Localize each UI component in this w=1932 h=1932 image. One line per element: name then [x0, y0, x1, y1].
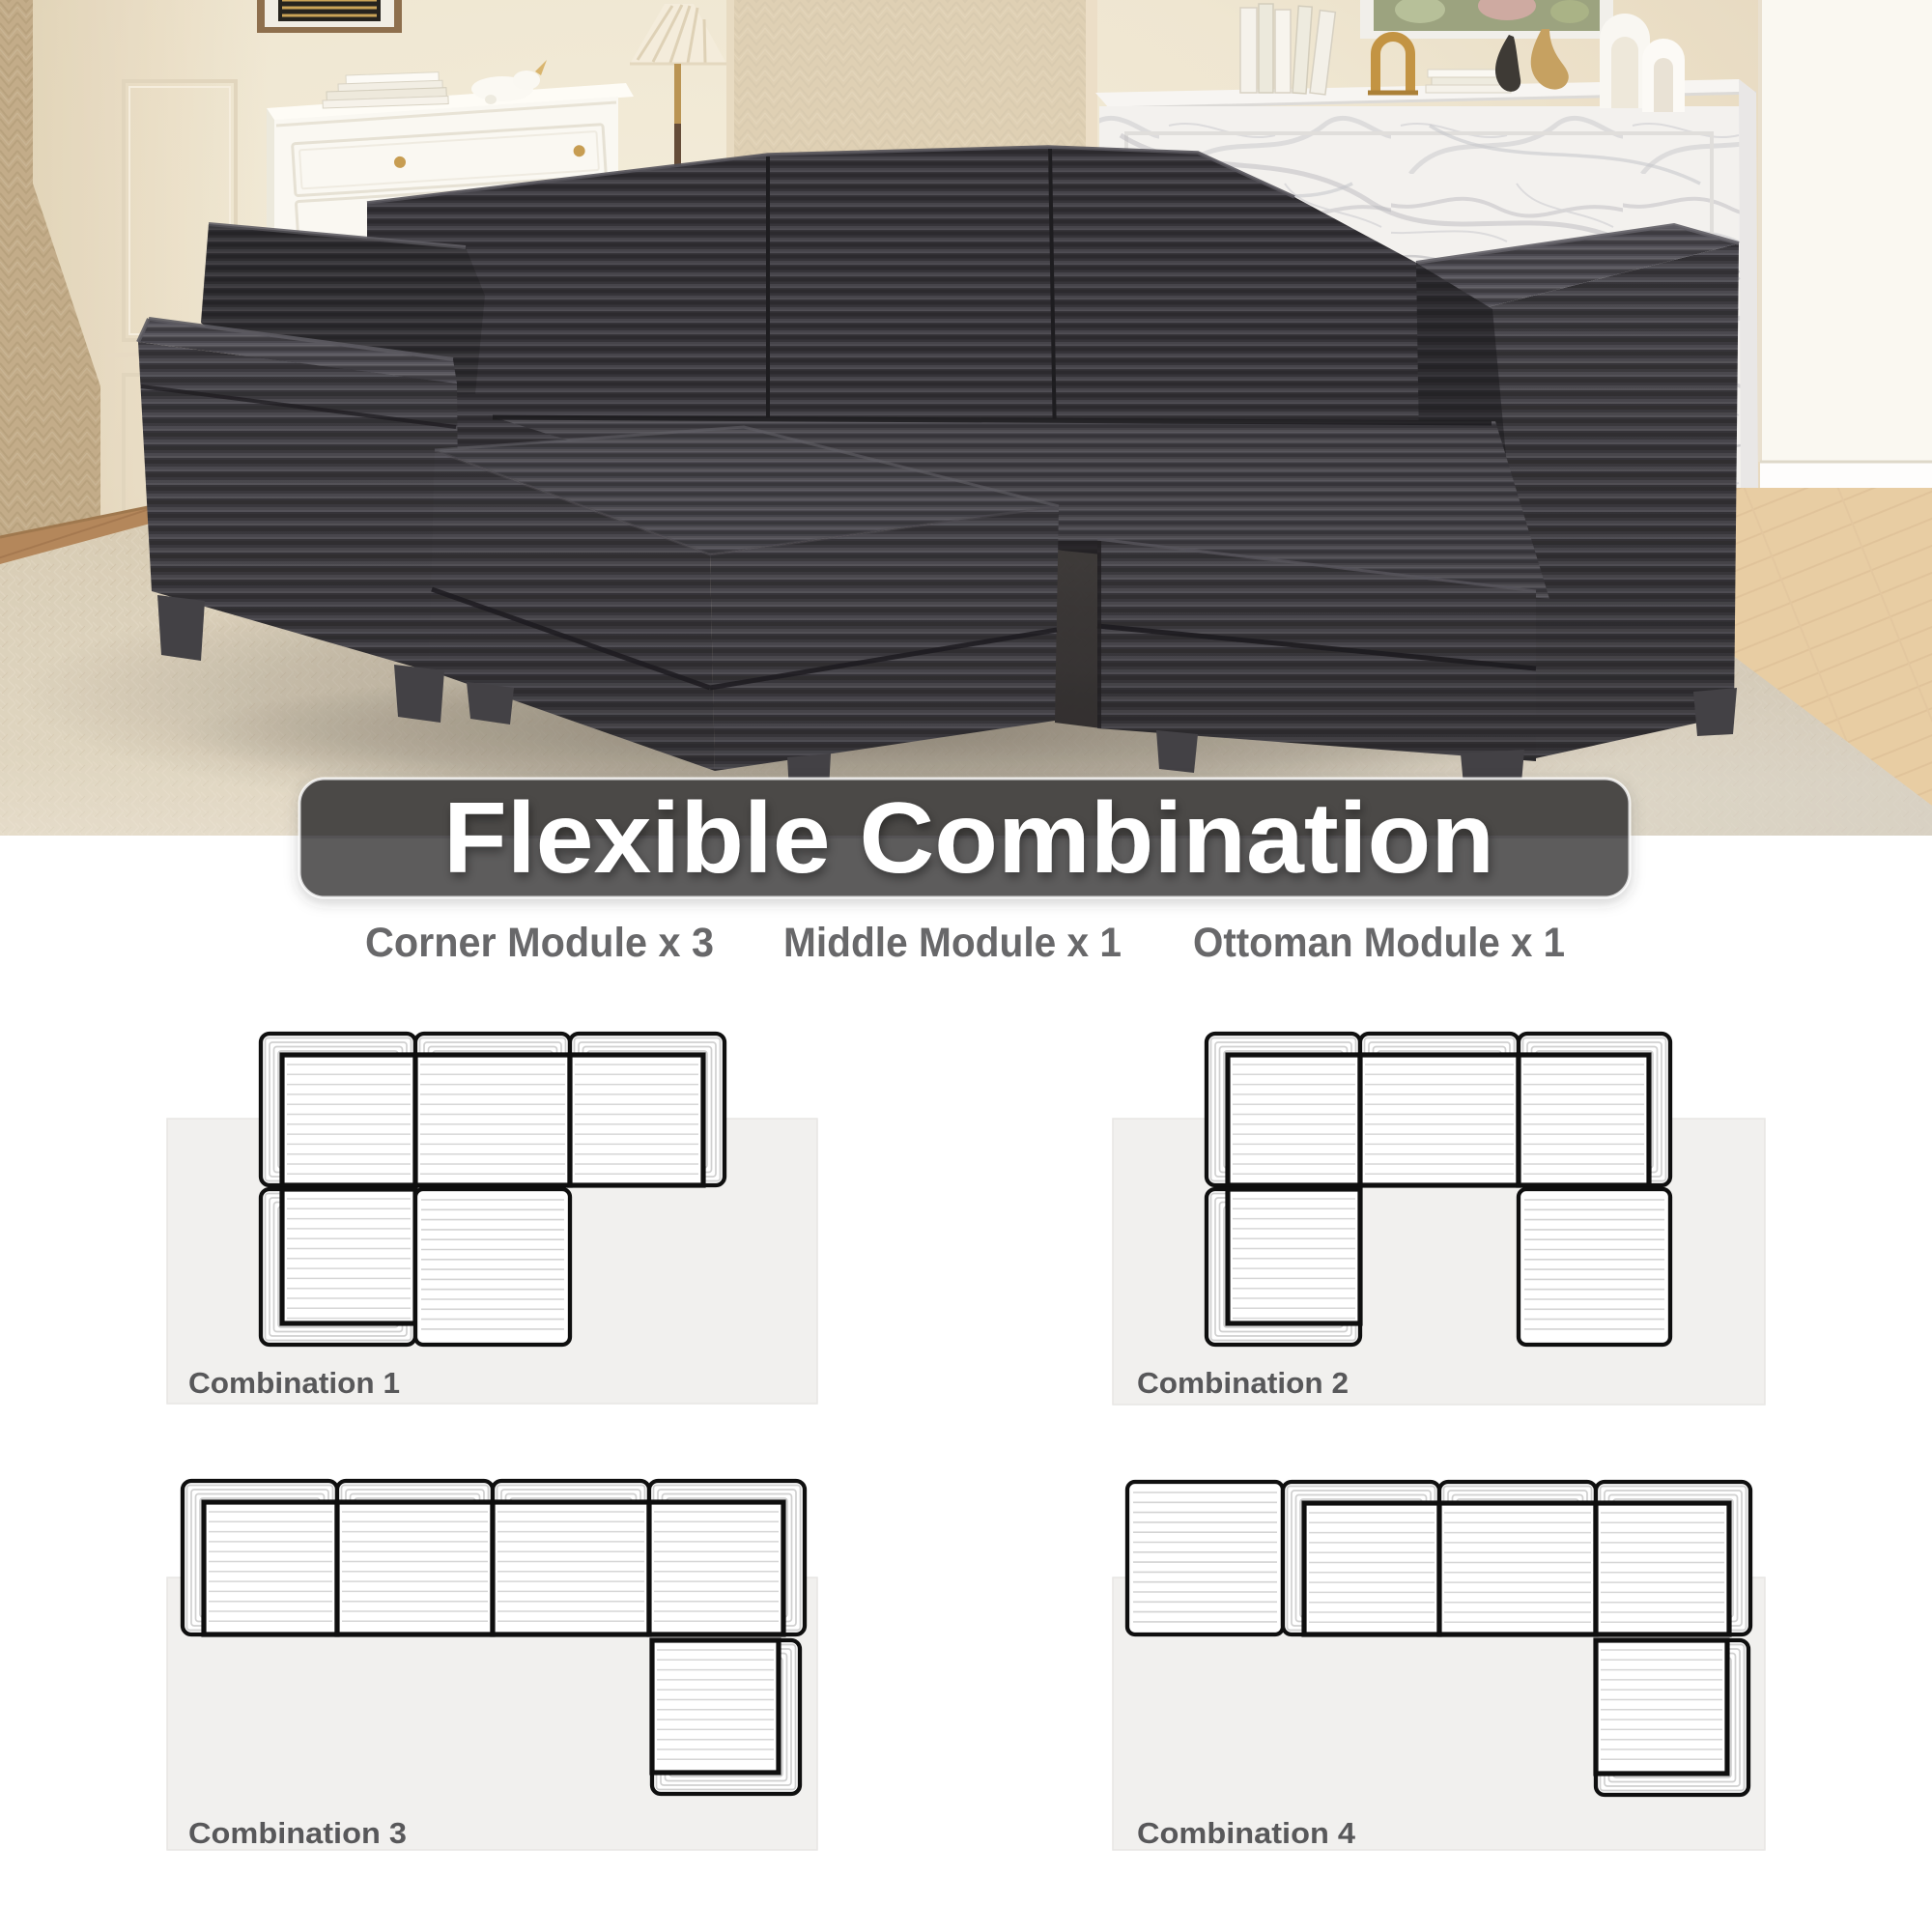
- svg-text:Combination 3: Combination 3: [188, 1816, 407, 1850]
- svg-text:Combination 4: Combination 4: [1137, 1816, 1356, 1850]
- svg-text:Ottoman Module x 1: Ottoman Module x 1: [1193, 920, 1565, 966]
- svg-text:Combination 1: Combination 1: [188, 1366, 400, 1400]
- svg-text:Middle Module x 1: Middle Module x 1: [783, 920, 1122, 966]
- svg-text:Corner Module x 3: Corner Module x 3: [365, 920, 714, 966]
- svg-text:Flexible Combination: Flexible Combination: [443, 782, 1494, 895]
- svg-text:Combination 2: Combination 2: [1137, 1366, 1349, 1400]
